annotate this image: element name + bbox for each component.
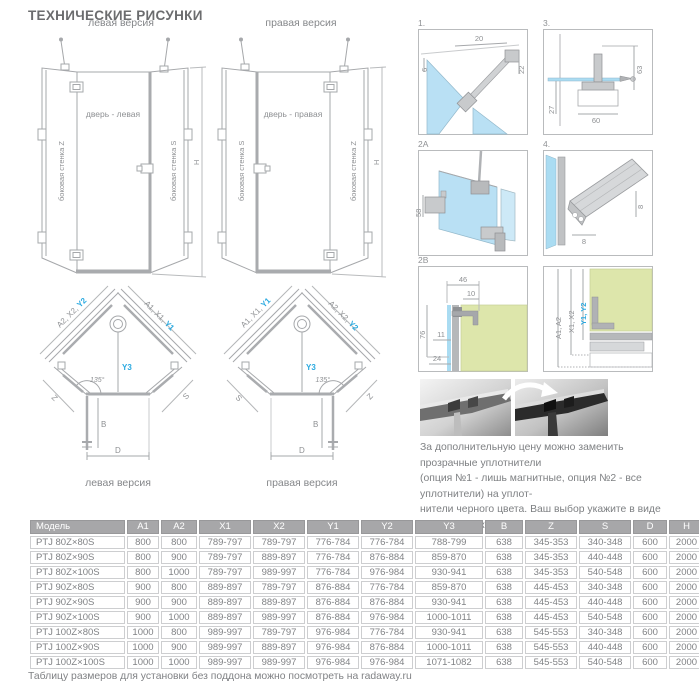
dim-cell: 876-884 [307, 596, 359, 609]
dim-label-y1-y2: Y1, Y2 [579, 303, 588, 325]
dim-cell: 440-448 [579, 551, 631, 564]
right-version-caption-top: правая версия [216, 17, 386, 29]
detail-1-label: 1. [418, 18, 425, 28]
plan-outline [224, 286, 380, 460]
table-row: PTJ 100Z×90S1000900989-997889-897976-984… [30, 641, 699, 654]
dim-cell: 776-784 [307, 551, 359, 564]
detail-1-box: 20 6 22 [418, 29, 528, 135]
left-version-caption-top: левая версия [36, 17, 206, 29]
footer-note: Таблицу размеров для установки без поддо… [28, 671, 412, 682]
table-row: PTJ 80Z×100S8001000789-797989-997776-784… [30, 566, 699, 579]
detail-4-drawing: 8 8 [544, 151, 652, 255]
side-right-dim-label: S [181, 391, 191, 401]
dim-cell: 876-884 [361, 596, 413, 609]
right-plan-drawing: A1, X1, Y1 A2, X2, Y2 Y3 135° S Z B D [222, 286, 382, 476]
seal-photo-right [515, 379, 608, 436]
dim-cell: 2000 [669, 656, 699, 669]
dim-label-24: 24 [433, 354, 441, 363]
detail-section-drawing: A1, A2 X1, X2 Y1, Y2 [544, 267, 652, 371]
height-dim-label: H [192, 160, 201, 165]
dim-cell: 1000-1011 [415, 611, 483, 624]
diag-left-dim-label: A2, X2, Y2 [55, 296, 89, 330]
col-header: A1 [127, 520, 159, 534]
dim-cell: 340-348 [579, 626, 631, 639]
dim-cell: 600 [633, 551, 667, 564]
dim-label-x1-x2: X1, X2 [567, 310, 576, 333]
dim-cell: 800 [161, 536, 197, 549]
height-dim-label: H [372, 160, 381, 165]
dimensions-table: МодельA1A2X1X2Y1Y2Y3BZSDH PTJ 80Z×80S800… [28, 518, 699, 671]
plan-outline [40, 286, 196, 460]
seal-photo-left [420, 379, 511, 436]
dim-cell: 2000 [669, 641, 699, 654]
dim-cell: 776-784 [307, 566, 359, 579]
table-row: PTJ 90Z×80S900800889-897789-797876-88477… [30, 581, 699, 594]
detail-3-box: 63 27 60 [543, 29, 653, 135]
dim-cell: 789-797 [199, 551, 251, 564]
dim-cell: 789-797 [199, 566, 251, 579]
table-row: PTJ 80Z×80S800800789-797789-797776-78477… [30, 536, 699, 549]
right-elevation-drawing: боковая стенка S боковая стенка Z дверь … [216, 33, 386, 281]
note-line: За дополнительную цену можно заменить пр… [420, 440, 678, 471]
dim-cell: 600 [633, 596, 667, 609]
dim-cell: 600 [633, 626, 667, 639]
dim-cell: 889-897 [253, 641, 305, 654]
door-label: дверь - левая [86, 109, 141, 119]
d-dim-label: D [299, 446, 305, 455]
dim-cell: 788-799 [415, 536, 483, 549]
dim-cell: 976-984 [307, 626, 359, 639]
right-elevation: боковая стенка S боковая стенка Z дверь … [216, 33, 386, 281]
col-header: A2 [161, 520, 197, 534]
dim-cell: 889-897 [199, 611, 251, 624]
dim-cell: 545-553 [525, 626, 577, 639]
dim-cell: 2000 [669, 596, 699, 609]
dim-cell: 445-453 [525, 611, 577, 624]
model-cell: PTJ 100Z×90S [30, 641, 125, 654]
dim-cell: 540-548 [579, 611, 631, 624]
dim-cell: 976-984 [361, 566, 413, 579]
dim-cell: 800 [161, 581, 197, 594]
model-cell: PTJ 100Z×100S [30, 656, 125, 669]
model-cell: PTJ 100Z×80S [30, 626, 125, 639]
dimensions-table-wrap: МодельA1A2X1X2Y1Y2Y3BZSDH PTJ 80Z×80S800… [28, 518, 699, 671]
right-version-caption-bottom: правая версия [222, 477, 382, 489]
dim-cell: 545-553 [525, 656, 577, 669]
model-cell: PTJ 90Z×90S [30, 596, 125, 609]
col-header: Y2 [361, 520, 413, 534]
side-left-dim-label: S [234, 393, 244, 403]
dim-cell: 889-897 [199, 581, 251, 594]
dim-cell: 600 [633, 536, 667, 549]
col-header: Модель [30, 520, 125, 534]
dim-cell: 789-797 [253, 581, 305, 594]
dim-label-a1-a2: A1, A2 [554, 317, 563, 339]
dim-cell: 638 [485, 611, 523, 624]
dim-cell: 2000 [669, 581, 699, 594]
detail-3-label: 3. [543, 18, 550, 28]
dim-cell: 345-353 [525, 566, 577, 579]
left-plan-drawing: A2, X2, Y2 A1, X1, Y1 Y3 135° Z S B D [38, 286, 198, 476]
dim-cell: 800 [127, 536, 159, 549]
col-header: Y3 [415, 520, 483, 534]
dim-cell: 989-997 [253, 656, 305, 669]
d-dim-label: D [115, 446, 121, 455]
detail-2a-box: 58 [418, 150, 528, 256]
dim-label-27: 27 [547, 106, 556, 114]
dim-cell: 540-548 [579, 656, 631, 669]
col-header: H [669, 520, 699, 534]
dim-cell: 989-997 [253, 566, 305, 579]
diag-left-dim-label: A1, X1, Y1 [239, 296, 273, 330]
model-cell: PTJ 90Z×80S [30, 581, 125, 594]
dim-cell: 638 [485, 551, 523, 564]
detail-2b-box: 46 10 76 11 24 [418, 266, 528, 372]
table-body: PTJ 80Z×80S800800789-797789-797776-78477… [30, 536, 699, 669]
col-header: B [485, 520, 523, 534]
note-line: (опция №1 - лишь магнитные, опция №2 - в… [420, 471, 678, 502]
model-cell: PTJ 90Z×100S [30, 611, 125, 624]
dim-cell: 889-897 [253, 596, 305, 609]
dim-cell: 889-897 [199, 596, 251, 609]
dim-cell: 1071-1082 [415, 656, 483, 669]
model-cell: PTJ 80Z×100S [30, 566, 125, 579]
dim-cell: 638 [485, 581, 523, 594]
model-cell: PTJ 80Z×90S [30, 551, 125, 564]
dim-cell: 2000 [669, 566, 699, 579]
col-header: X1 [199, 520, 251, 534]
dim-cell: 445-453 [525, 581, 577, 594]
left-elevation: боковая стенка Z боковая стенка S дверь … [36, 33, 206, 281]
dim-cell: 540-548 [579, 566, 631, 579]
dim-cell: 1000 [161, 611, 197, 624]
dim-cell: 1000 [161, 656, 197, 669]
angle-label: 135° [316, 376, 331, 384]
dim-cell: 989-997 [199, 626, 251, 639]
detail-4-label: 4. [543, 139, 550, 149]
seal-photos [420, 379, 608, 436]
dim-cell: 638 [485, 656, 523, 669]
dim-label-22: 22 [517, 66, 526, 74]
dim-cell: 2000 [669, 536, 699, 549]
dim-cell: 800 [161, 626, 197, 639]
dim-label-10: 10 [467, 289, 475, 298]
dim-cell: 345-353 [525, 536, 577, 549]
detail-2b-drawing: 46 10 76 11 24 [419, 267, 527, 371]
dim-cell: 440-448 [579, 596, 631, 609]
dim-cell: 889-897 [253, 551, 305, 564]
detail-3-drawing: 63 27 60 [544, 30, 652, 134]
dim-label-76: 76 [418, 331, 427, 339]
table-row: PTJ 90Z×100S9001000889-897989-997876-884… [30, 611, 699, 624]
dim-cell: 2000 [669, 551, 699, 564]
right-plan: A1, X1, Y1 A2, X2, Y2 Y3 135° S Z B D [222, 286, 382, 476]
dim-label-20: 20 [475, 34, 483, 43]
detail-1-drawing: 20 6 22 [419, 30, 527, 134]
b-dim-label: B [101, 420, 106, 429]
dim-cell: 900 [127, 596, 159, 609]
dim-cell: 2000 [669, 626, 699, 639]
dim-cell: 445-453 [525, 596, 577, 609]
dim-cell: 876-884 [307, 581, 359, 594]
dim-cell: 1000-1011 [415, 641, 483, 654]
dim-cell: 900 [161, 596, 197, 609]
dim-cell: 859-870 [415, 581, 483, 594]
dim-cell: 989-997 [199, 656, 251, 669]
dim-cell: 2000 [669, 611, 699, 624]
col-header: D [633, 520, 667, 534]
door-label: дверь - правая [264, 109, 323, 119]
dim-cell: 1000 [127, 656, 159, 669]
dim-label-60: 60 [592, 116, 600, 125]
dim-cell: 800 [127, 551, 159, 564]
dim-label-63: 63 [635, 66, 644, 74]
dim-cell: 638 [485, 596, 523, 609]
side-right-dim-label: Z [365, 392, 375, 402]
dim-cell: 600 [633, 566, 667, 579]
dim-cell: 976-984 [361, 611, 413, 624]
dim-cell: 1000 [161, 566, 197, 579]
dim-cell: 789-797 [199, 536, 251, 549]
y3-dim-label: Y3 [306, 363, 316, 372]
wall-left-label: боковая стенка S [237, 141, 246, 201]
dim-cell: 600 [633, 656, 667, 669]
dim-cell: 1000 [127, 641, 159, 654]
dim-cell: 1000 [127, 626, 159, 639]
dim-cell: 340-348 [579, 536, 631, 549]
col-header: Z [525, 520, 577, 534]
dim-cell: 340-348 [579, 581, 631, 594]
dim-cell: 638 [485, 566, 523, 579]
dim-cell: 876-884 [361, 641, 413, 654]
dim-cell: 776-784 [361, 626, 413, 639]
dim-cell: 930-941 [415, 566, 483, 579]
dim-cell: 600 [633, 641, 667, 654]
dim-cell: 859-870 [415, 551, 483, 564]
dim-cell: 440-448 [579, 641, 631, 654]
table-row: PTJ 100Z×100S10001000989-997989-997976-9… [30, 656, 699, 669]
side-left-dim-label: Z [50, 393, 60, 403]
dim-cell: 776-784 [307, 536, 359, 549]
dim-label-6: 6 [420, 68, 429, 72]
dim-label-8-right: 8 [636, 205, 645, 209]
wall-right-label: боковая стенка Z [349, 141, 358, 201]
detail-2b-label: 2B [418, 255, 428, 265]
dim-cell: 989-997 [199, 641, 251, 654]
seal-photos-image [420, 379, 608, 436]
dim-cell: 900 [127, 581, 159, 594]
y3-dim-label: Y3 [122, 363, 132, 372]
dim-label-8-bottom: 8 [582, 237, 586, 246]
dim-cell: 600 [633, 581, 667, 594]
table-row: PTJ 90Z×90S900900889-897889-897876-88487… [30, 596, 699, 609]
header-row: МодельA1A2X1X2Y1Y2Y3BZSDH [30, 520, 699, 534]
b-dim-label: B [313, 420, 318, 429]
dim-cell: 930-941 [415, 596, 483, 609]
dim-cell: 876-884 [307, 611, 359, 624]
table-head: МодельA1A2X1X2Y1Y2Y3BZSDH [30, 520, 699, 534]
dim-cell: 545-553 [525, 641, 577, 654]
dim-cell: 976-984 [307, 641, 359, 654]
dim-cell: 976-984 [361, 656, 413, 669]
detail-2a-drawing: 58 [419, 151, 527, 255]
dim-cell: 800 [127, 566, 159, 579]
dim-cell: 776-784 [361, 536, 413, 549]
table-row: PTJ 100Z×80S1000800989-997789-797976-984… [30, 626, 699, 639]
dim-cell: 638 [485, 626, 523, 639]
dim-cell: 600 [633, 611, 667, 624]
dim-cell: 989-997 [253, 611, 305, 624]
dim-label-11: 11 [437, 330, 445, 339]
table-row: PTJ 80Z×90S800900789-797889-897776-78487… [30, 551, 699, 564]
dim-cell: 900 [161, 641, 197, 654]
dim-cell: 930-941 [415, 626, 483, 639]
left-elevation-drawing: боковая стенка Z боковая стенка S дверь … [36, 33, 206, 281]
model-cell: PTJ 80Z×80S [30, 536, 125, 549]
col-header: Y1 [307, 520, 359, 534]
detail-2a-label: 2A [418, 139, 428, 149]
detail-section-box: A1, A2 X1, X2 Y1, Y2 [543, 266, 653, 372]
left-plan: A2, X2, Y2 A1, X1, Y1 Y3 135° Z S B D [38, 286, 198, 476]
dim-cell: 900 [161, 551, 197, 564]
col-header: S [579, 520, 631, 534]
angle-label: 135° [90, 376, 105, 384]
dim-label-46: 46 [459, 275, 467, 284]
dim-cell: 789-797 [253, 626, 305, 639]
dim-cell: 638 [485, 536, 523, 549]
dim-cell: 638 [485, 641, 523, 654]
dim-cell: 900 [127, 611, 159, 624]
left-version-caption-bottom: левая версия [38, 477, 198, 489]
wall-left-label: боковая стенка Z [57, 141, 66, 201]
wall-right-label: боковая стенка S [169, 141, 178, 201]
technical-drawings-page: ТЕХНИЧЕСКИЕ РИСУНКИ левая версия правая … [0, 0, 699, 691]
detail-4-box: 8 8 [543, 150, 653, 256]
col-header: X2 [253, 520, 305, 534]
dim-cell: 976-984 [307, 656, 359, 669]
dim-cell: 345-353 [525, 551, 577, 564]
dim-label-58: 58 [414, 209, 423, 217]
dim-cell: 776-784 [361, 581, 413, 594]
dim-cell: 789-797 [253, 536, 305, 549]
dim-cell: 876-884 [361, 551, 413, 564]
